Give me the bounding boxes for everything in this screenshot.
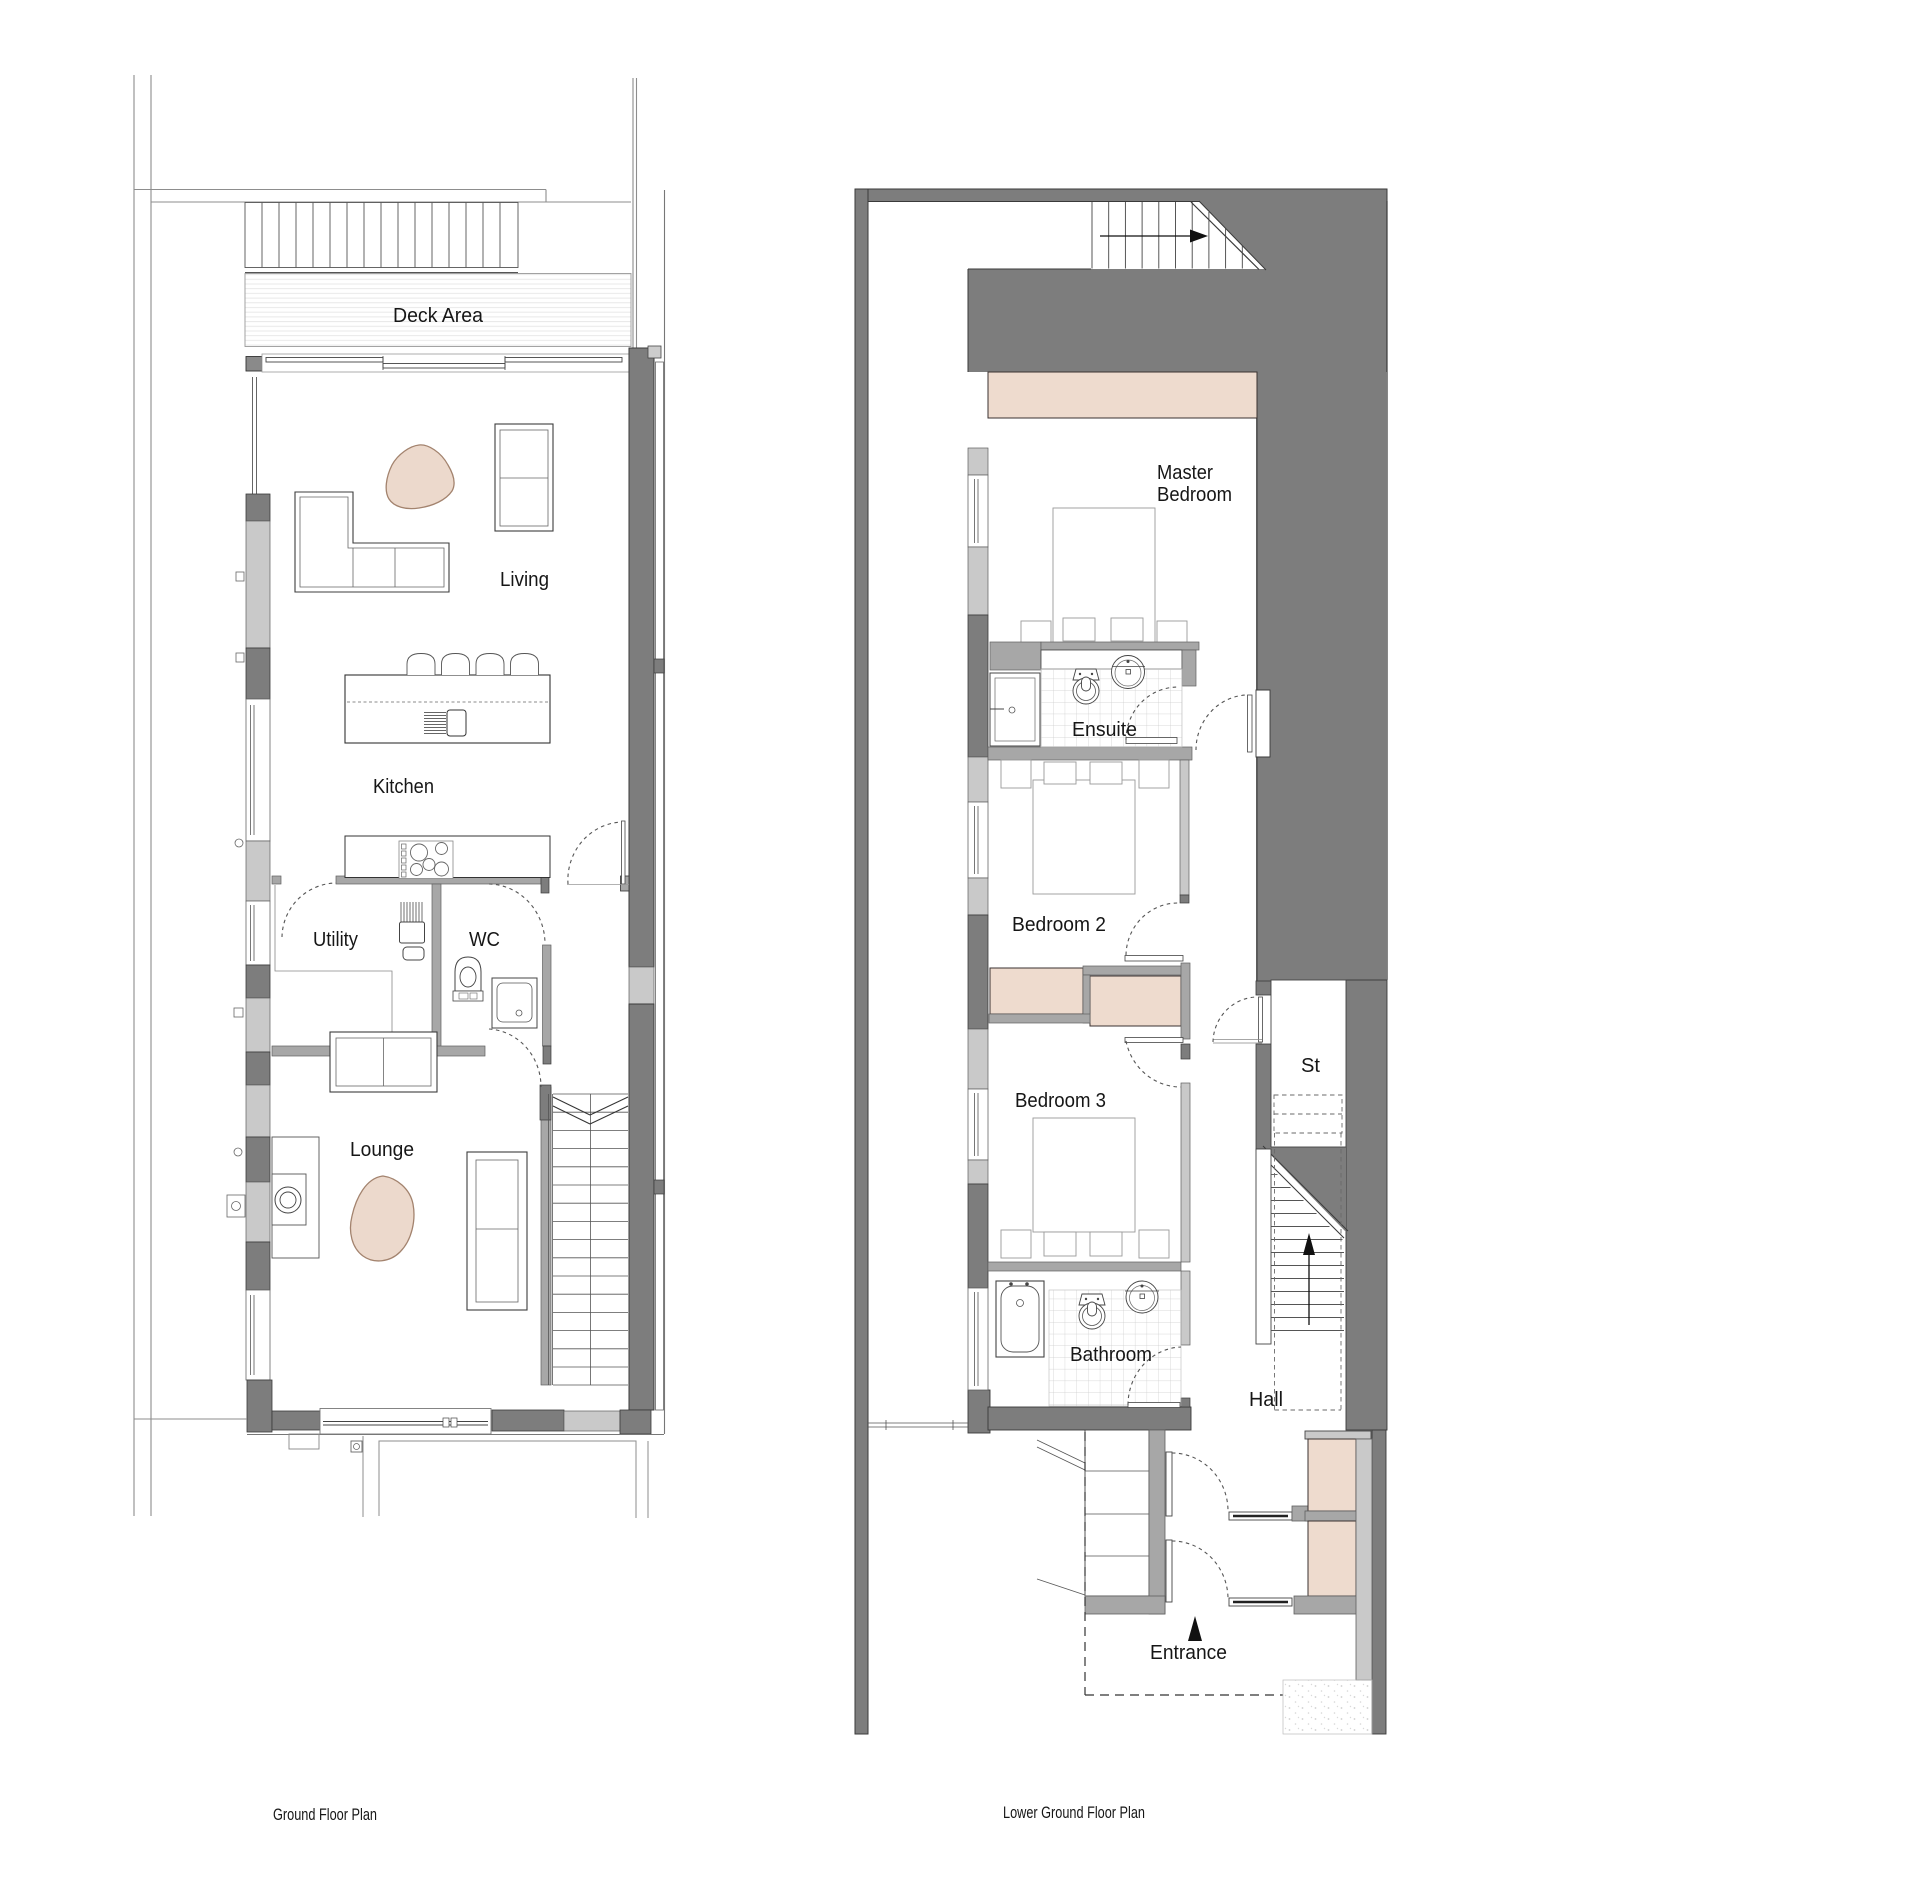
svg-text:Hall: Hall [1249, 1388, 1283, 1411]
svg-text:Bathroom: Bathroom [1070, 1343, 1152, 1366]
svg-text:Master: Master [1157, 461, 1213, 484]
svg-text:Ensuite: Ensuite [1072, 718, 1137, 741]
svg-text:Lower Ground Floor Plan: Lower Ground Floor Plan [1003, 1804, 1145, 1822]
svg-text:Bedroom: Bedroom [1157, 483, 1232, 506]
svg-text:Entrance: Entrance [1150, 1641, 1227, 1664]
svg-text:WC: WC [469, 928, 500, 951]
svg-text:Deck Area: Deck Area [393, 304, 484, 327]
svg-text:St: St [1301, 1054, 1320, 1077]
svg-text:Kitchen: Kitchen [373, 775, 434, 798]
svg-text:Lounge: Lounge [350, 1138, 414, 1161]
svg-text:Ground Floor Plan: Ground Floor Plan [273, 1806, 377, 1824]
svg-text:Bedroom 3: Bedroom 3 [1015, 1089, 1106, 1112]
svg-text:Living: Living [500, 568, 549, 591]
svg-text:Utility: Utility [313, 928, 359, 951]
svg-text:Bedroom 2: Bedroom 2 [1012, 913, 1106, 936]
